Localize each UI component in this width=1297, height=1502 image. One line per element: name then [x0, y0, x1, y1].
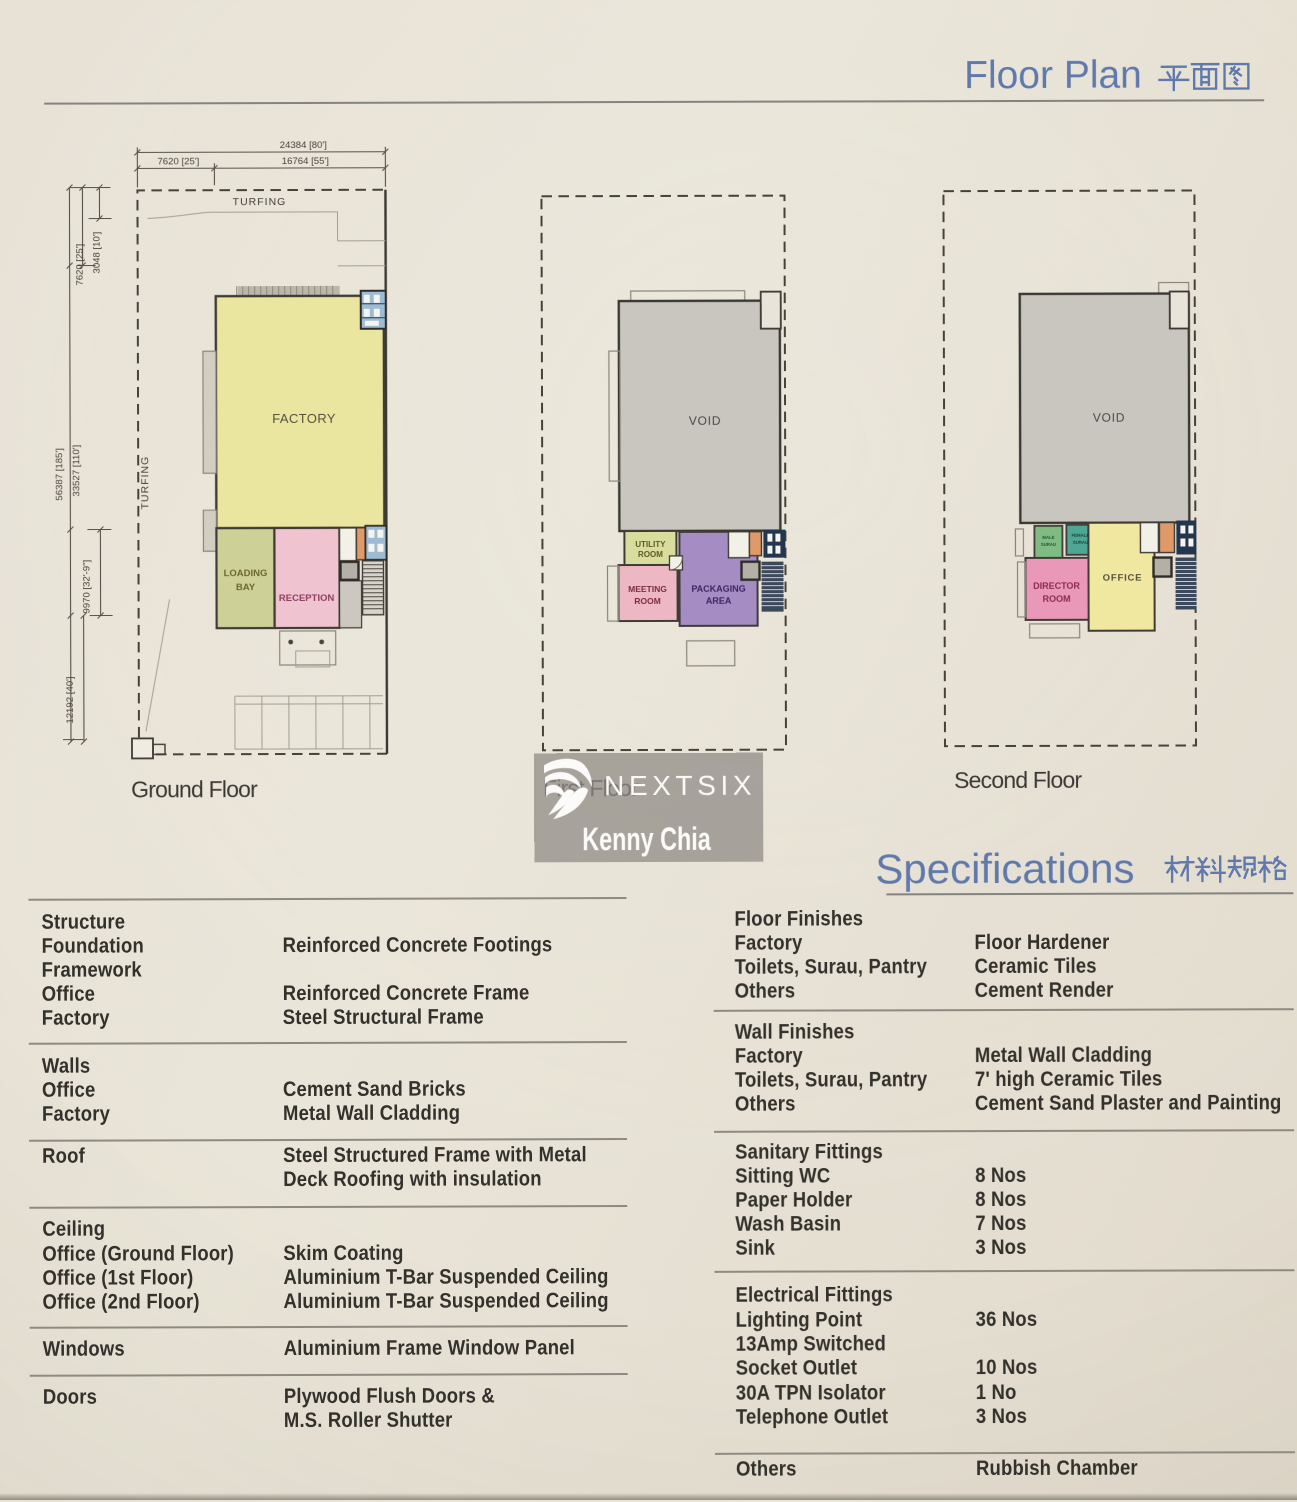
svg-text:12192 [40']: 12192 [40'] [65, 676, 76, 723]
svg-text:TURFING: TURFING [139, 456, 151, 510]
svg-text:MEETING: MEETING [628, 584, 667, 594]
svg-text:PACKAGING: PACKAGING [691, 584, 745, 594]
svg-text:DIRECTOR: DIRECTOR [1033, 581, 1080, 591]
svg-text:TURFING: TURFING [233, 196, 287, 208]
svg-text:33527 [110']: 33527 [110'] [71, 445, 82, 497]
svg-text:3048 [10']: 3048 [10'] [92, 232, 103, 274]
svg-text:LOADING: LOADING [224, 568, 268, 579]
svg-text:BAY: BAY [236, 582, 256, 593]
svg-text:VOID: VOID [689, 414, 722, 428]
svg-text:7620 [25']: 7620 [25'] [75, 244, 86, 286]
svg-text:ROOM: ROOM [638, 550, 663, 559]
svg-text:FEMALE: FEMALE [1072, 533, 1090, 538]
svg-text:SURAU: SURAU [1041, 542, 1056, 547]
svg-text:9970 [32'-9"]: 9970 [32'-9"] [81, 560, 92, 614]
svg-text:OFFICE: OFFICE [1103, 573, 1143, 584]
svg-text:SURAU: SURAU [1073, 540, 1088, 545]
svg-text:ROOM: ROOM [634, 596, 660, 606]
svg-text:ROOM: ROOM [1043, 594, 1071, 604]
svg-text:FACTORY: FACTORY [272, 411, 336, 426]
svg-text:MALE: MALE [1042, 535, 1054, 540]
svg-text:VOID: VOID [1093, 411, 1126, 425]
svg-text:UTILITY: UTILITY [635, 540, 666, 549]
svg-text:24384 [80']: 24384 [80'] [280, 140, 327, 151]
svg-text:56387 [185']: 56387 [185'] [54, 448, 65, 501]
svg-text:AREA: AREA [706, 596, 732, 606]
svg-text:RECEPTION: RECEPTION [279, 593, 335, 604]
svg-text:16764 [55']: 16764 [55'] [282, 156, 329, 167]
svg-text:7620 [25']: 7620 [25'] [157, 156, 199, 167]
